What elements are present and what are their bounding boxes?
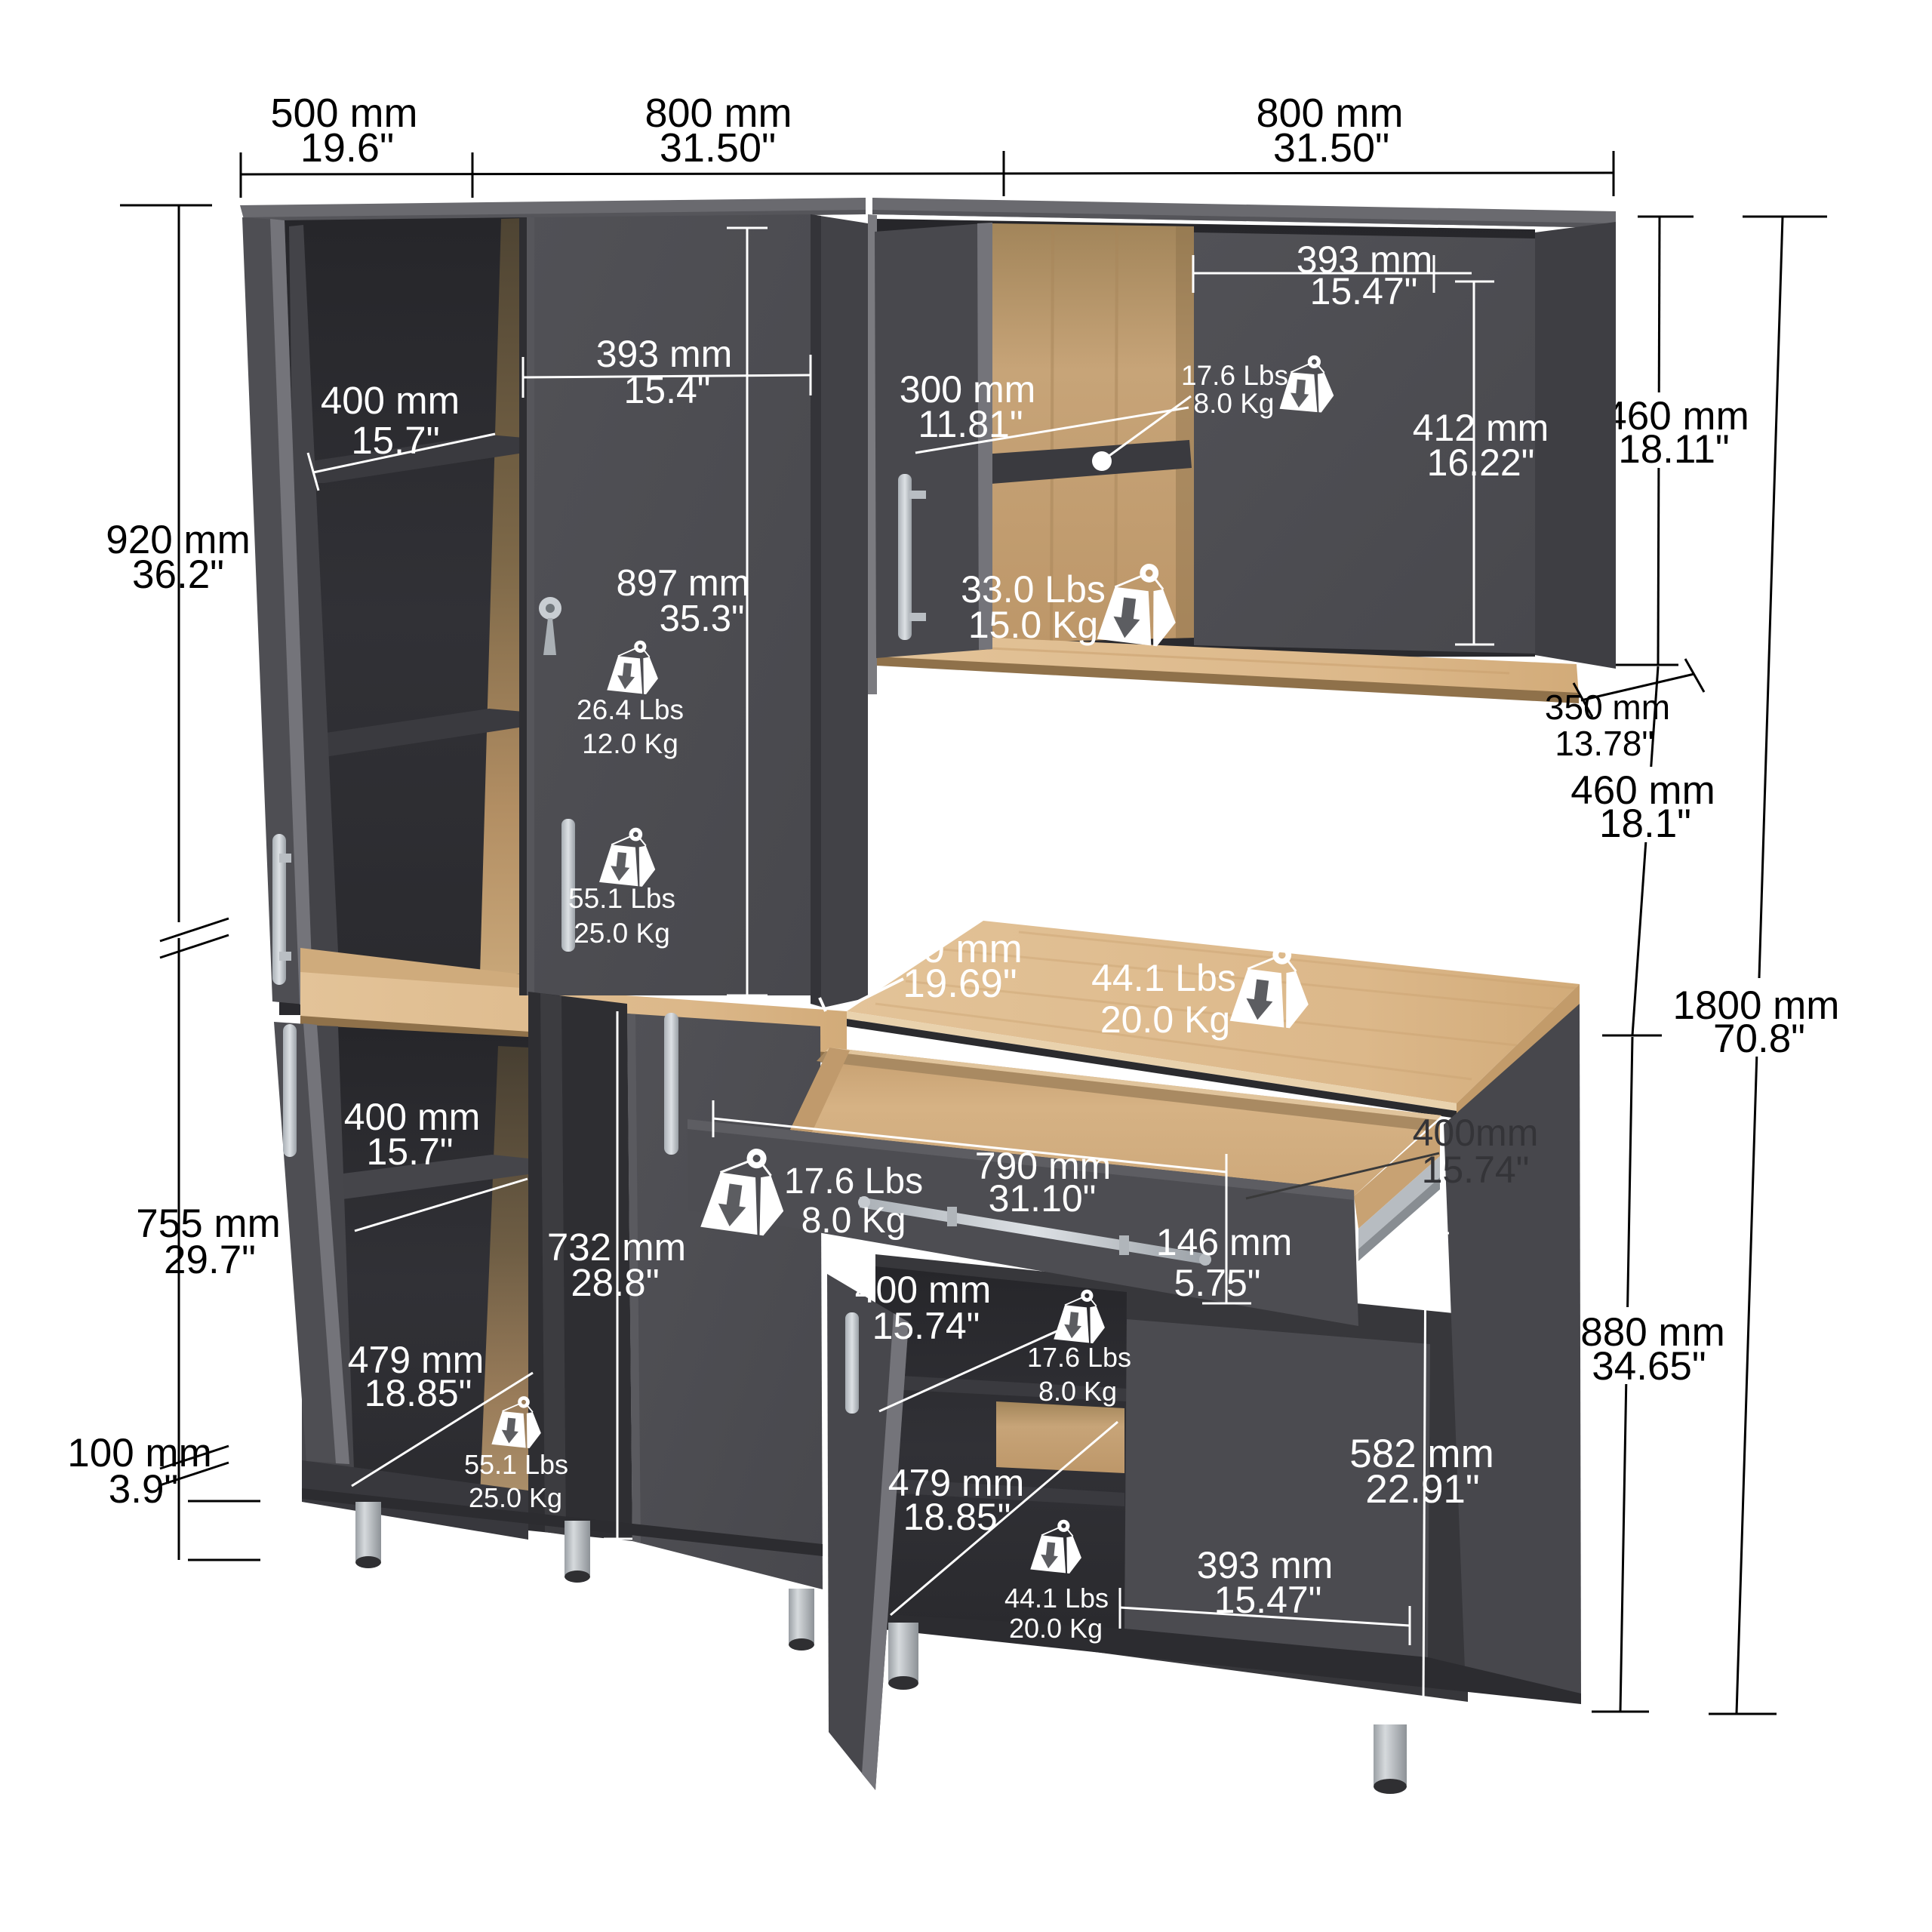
- svg-text:15.74": 15.74": [1422, 1149, 1530, 1191]
- svg-text:8.0 Kg: 8.0 Kg: [1038, 1376, 1117, 1407]
- svg-text:25.0 Kg: 25.0 Kg: [574, 918, 670, 949]
- svg-text:16.22": 16.22": [1427, 441, 1535, 484]
- svg-text:20.0 Kg: 20.0 Kg: [1100, 998, 1230, 1041]
- svg-text:55.1 Lbs: 55.1 Lbs: [568, 883, 675, 914]
- svg-text:25.0 Kg: 25.0 Kg: [469, 1482, 562, 1513]
- svg-text:15.74": 15.74": [872, 1305, 980, 1347]
- svg-text:8.0 Kg: 8.0 Kg: [801, 1201, 906, 1241]
- svg-text:17.6 Lbs: 17.6 Lbs: [784, 1161, 923, 1201]
- svg-text:29.7": 29.7": [164, 1238, 256, 1282]
- svg-text:12.0 Kg: 12.0 Kg: [582, 728, 678, 759]
- svg-text:400 mm: 400 mm: [321, 379, 460, 422]
- svg-text:20.0 Kg: 20.0 Kg: [1009, 1613, 1103, 1644]
- svg-text:22.91": 22.91": [1365, 1467, 1479, 1512]
- svg-text:146 mm: 146 mm: [1156, 1221, 1293, 1263]
- svg-text:55.1 Lbs: 55.1 Lbs: [464, 1449, 568, 1480]
- svg-text:3.9": 3.9": [109, 1467, 179, 1512]
- svg-text:18.85": 18.85": [365, 1372, 472, 1414]
- svg-text:36.2": 36.2": [132, 552, 224, 597]
- svg-text:19.69": 19.69": [903, 961, 1017, 1006]
- svg-text:15.7": 15.7": [366, 1131, 453, 1173]
- svg-text:15.47": 15.47": [1214, 1579, 1322, 1621]
- svg-text:8.0 Kg: 8.0 Kg: [1194, 388, 1275, 419]
- svg-text:31.10": 31.10": [989, 1177, 1097, 1220]
- svg-text:11.81": 11.81": [918, 403, 1023, 445]
- svg-text:34.65": 34.65": [1592, 1344, 1706, 1389]
- svg-text:15.47": 15.47": [1310, 270, 1418, 312]
- svg-text:5.75": 5.75": [1174, 1262, 1260, 1304]
- svg-text:350 mm: 350 mm: [1545, 688, 1670, 727]
- svg-text:13.78": 13.78": [1555, 724, 1654, 763]
- svg-text:19.6": 19.6": [300, 125, 394, 171]
- svg-text:31.50": 31.50": [660, 125, 776, 171]
- svg-text:400mm: 400mm: [1413, 1112, 1539, 1154]
- svg-text:17.6 Lbs: 17.6 Lbs: [1181, 360, 1288, 391]
- svg-text:15.4": 15.4": [623, 369, 710, 411]
- svg-text:31.50": 31.50": [1273, 125, 1389, 171]
- svg-text:18.11": 18.11": [1618, 427, 1730, 472]
- svg-text:897 mm: 897 mm: [616, 563, 749, 604]
- svg-text:26.4 Lbs: 26.4 Lbs: [577, 694, 684, 725]
- svg-text:44.1 Lbs: 44.1 Lbs: [1091, 957, 1236, 999]
- svg-text:18.1": 18.1": [1599, 801, 1691, 846]
- svg-text:44.1 Lbs: 44.1 Lbs: [1004, 1583, 1109, 1614]
- svg-text:70.8": 70.8": [1713, 1017, 1805, 1061]
- svg-text:18.85": 18.85": [903, 1496, 1011, 1538]
- svg-text:28.8": 28.8": [571, 1261, 659, 1304]
- svg-text:17.6 Lbs: 17.6 Lbs: [1027, 1342, 1131, 1373]
- svg-text:35.3": 35.3": [660, 598, 745, 639]
- svg-text:15.0 Kg: 15.0 Kg: [968, 604, 1098, 646]
- svg-text:15.7": 15.7": [351, 419, 439, 462]
